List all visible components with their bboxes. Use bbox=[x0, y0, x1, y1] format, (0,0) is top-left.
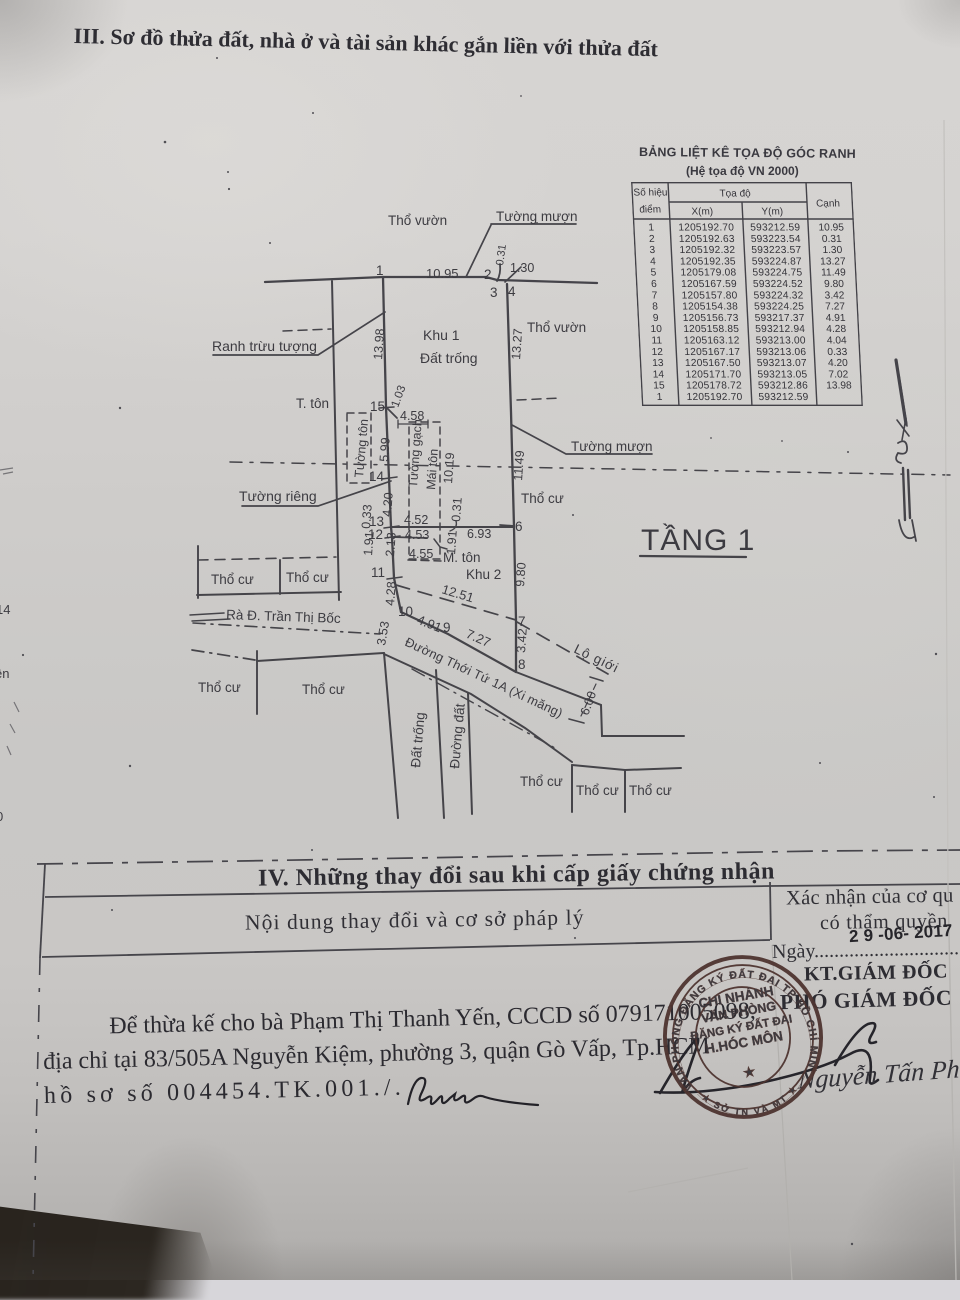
svg-text:★: ★ bbox=[742, 1064, 756, 1081]
